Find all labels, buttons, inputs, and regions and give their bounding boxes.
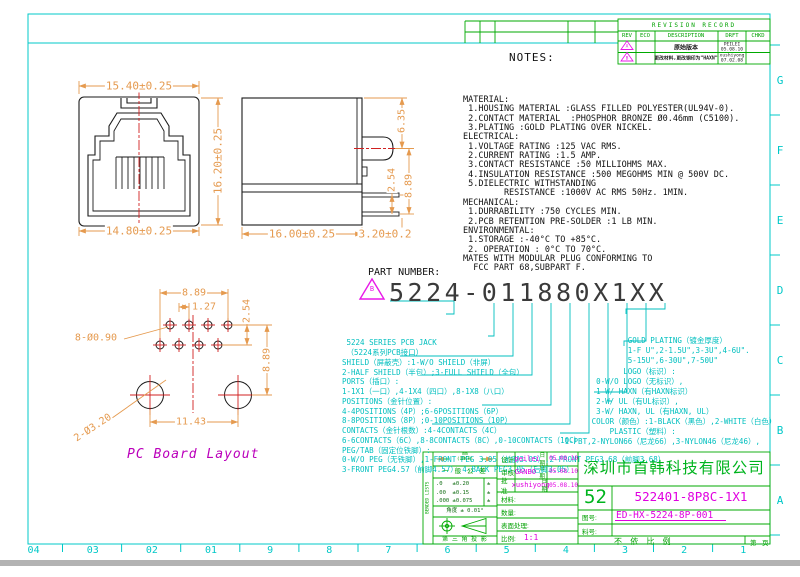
revision-date: 05.08.10 — [721, 47, 743, 52]
info-row: 数量: — [497, 505, 578, 518]
part-number-rev-mark: B — [370, 285, 374, 293]
page-label: 页 — [762, 537, 769, 547]
grid-ruler-right: GFEDCBA — [772, 45, 788, 535]
info-label: 表面处理: — [497, 520, 529, 530]
callout-line: 5-15U",6-30U",7-50U" — [560, 356, 776, 366]
dim-pcb-row-gap: 2.54 — [242, 298, 253, 324]
dim-pcb-small-holes: 8-Ø0.90 — [74, 333, 118, 344]
callout-line: 1-PBT,2-NYLON66（尼龙66）,3-NYLON46（尼龙46）, — [560, 437, 776, 447]
tolerance-inch-column: ± ± ± — [487, 480, 490, 506]
info-row: 表面处理: — [497, 518, 578, 531]
info-label: 数量: — [497, 507, 516, 517]
scale-note: 不 依 比 例 — [614, 536, 674, 547]
grid-label: 8 — [300, 545, 359, 557]
grid-label: 03 — [63, 545, 122, 557]
window-edge-band — [0, 560, 800, 566]
dim-side-depth: 16.00±0.25 — [268, 228, 336, 241]
revision-triangle-letter: A — [626, 45, 629, 50]
part-no: 522401-8P8C-1X1 — [612, 489, 770, 504]
rev-col-header: REV — [622, 33, 632, 39]
dim-pcb-height: 8.89 — [262, 347, 273, 373]
title-block-side-text: BENDED LISTS — [423, 452, 433, 544]
info-value: 1:1 — [516, 533, 538, 542]
third-angle-projection-label: 第 三 角 投 影 — [433, 536, 497, 544]
grid-label: 04 — [4, 545, 63, 557]
material-no-label: 料号: — [582, 526, 597, 536]
dim-side-pin-gap: 2.54 — [387, 167, 398, 193]
sign-name: GANBO — [515, 468, 539, 476]
dim-side-pin-length: 3.20±0.2 — [358, 228, 413, 241]
info-row: 比例: 1:1 — [497, 531, 578, 544]
sign-date: 05.08.10 — [549, 455, 578, 462]
sign-role-label: 设计 — [497, 454, 514, 464]
dim-side-total-height: 8.89 — [404, 173, 415, 199]
series-number: 52 — [584, 486, 607, 508]
dim-side-top-height: 6.35 — [397, 108, 408, 134]
grid-label: 7 — [359, 545, 418, 557]
signature-row: 设计 peilei 日期 05.08.10 — [497, 452, 578, 465]
callout-line: 1-F U",2-1.5U",3-3U",4-6U". — [560, 346, 776, 356]
notes-text: MATERIAL: 1.HOUSING MATERIAL :GLASS FILL… — [463, 68, 739, 274]
grid-label: A — [772, 465, 788, 535]
callout-line: COLOR（颜色）:1-BLACK（黑色）,2-WHITE（白色） — [560, 417, 776, 427]
grid-label: 6 — [418, 545, 477, 557]
revision-description: 更改材料,更改钢印为"HAXN" — [654, 55, 717, 62]
revision-date: 07.02.08 — [721, 59, 743, 64]
description-col-header: DESCRIPTION — [668, 33, 704, 39]
info-label: 材料: — [497, 494, 516, 504]
part-number-value: 5224-011880X1XX — [389, 278, 667, 307]
tolerance-unit: mm (INCH) — [433, 452, 497, 466]
tolerance-angle: 角度 ± 0.01° — [433, 506, 497, 517]
sign-date: 05.08.10 — [549, 482, 578, 489]
callout-line: 2-W/ UL（有UL标识）, — [560, 397, 776, 407]
revision-triangle-letter: B — [626, 56, 629, 61]
callout-line: PLASTIC（塑料）: — [560, 427, 776, 437]
sign-date: 05.08.10 — [549, 468, 578, 475]
sign-name: peilei — [514, 455, 539, 463]
callout-line: 0-W/O LOGO（无标识）, — [560, 377, 776, 387]
eco-col-header: ECO — [640, 33, 650, 39]
grid-label: 02 — [122, 545, 181, 557]
signature-rows: 设计 peilei 日期 05.08.10 审核 GANBO 日期 05.08.… — [497, 452, 578, 492]
info-label: 比例: — [497, 533, 516, 543]
drft-col-header: DRFT — [725, 33, 738, 39]
tolerance-general-label: 一 般 公 差 — [433, 466, 497, 478]
callout-line: 3-W/ HAXN, UL（有HAXN, UL） — [560, 407, 776, 417]
sign-date-label: 日期 — [542, 477, 549, 493]
callout-line: 1-W/ HAXN（有HAXN标识） — [560, 387, 776, 397]
sheet-label: 第 — [750, 537, 757, 547]
tolerance-values: .0 ±0.20 .00 ±0.15 .000 ±0.075 — [436, 480, 472, 506]
grid-label: 01 — [181, 545, 240, 557]
dim-front-width-top: 15.40±0.25 — [105, 80, 173, 93]
dim-pcb-hole-span: 11.43 — [175, 417, 207, 428]
sign-name: xushiyong — [512, 481, 542, 489]
dim-pcb-offset: 1.27 — [191, 302, 217, 313]
grid-label: E — [772, 185, 788, 255]
dim-front-width-bottom: 14.80±0.25 — [105, 225, 173, 238]
company-name: 深圳市首韩科技有限公司 — [578, 456, 770, 478]
dim-front-height: 16.20±0.25 — [212, 127, 225, 195]
info-row: 材料: — [497, 492, 578, 505]
part-number-label: PART NUMBER: — [368, 267, 440, 278]
revision-description: 原始版本 — [674, 42, 698, 51]
engineering-drawing-sheet: 04030201987654321 GFEDCBA REVISION RECOR… — [0, 0, 800, 577]
grid-label: 9 — [241, 545, 300, 557]
grid-label: 4 — [536, 545, 595, 557]
dim-pcb-row-span: 8.89 — [181, 288, 207, 299]
callout-line: GOLD PLATING（镀金厚度） — [560, 336, 776, 346]
grid-label: F — [772, 115, 788, 185]
callout-line: LOGO（标识）: — [560, 367, 776, 377]
side-view — [242, 98, 399, 225]
notes-title: NOTES: — [509, 51, 555, 64]
grid-label: 5 — [477, 545, 536, 557]
signature-row: 批准 xushiyong 日期 05.08.10 — [497, 479, 578, 492]
info-rows: 材料: 数量: 表面处理: 比例: 1:1 — [497, 492, 578, 544]
revision-table-title: REVISION RECORD — [618, 20, 770, 31]
part-number-callouts-right: GOLD PLATING（镀金厚度） 1-F U",2-1.5U",3-3U",… — [560, 306, 776, 447]
note-line: FCC PART 68,SUBPART F. — [463, 264, 739, 273]
chkd-col-header: CHKD — [751, 33, 764, 39]
grid-label: G — [772, 45, 788, 115]
pcb-layout-caption: PC Board Layout — [127, 447, 259, 462]
drawing-no: ED-HX-5224-8P-001 — [616, 510, 713, 521]
drawing-no-label: 图号: — [582, 512, 597, 522]
